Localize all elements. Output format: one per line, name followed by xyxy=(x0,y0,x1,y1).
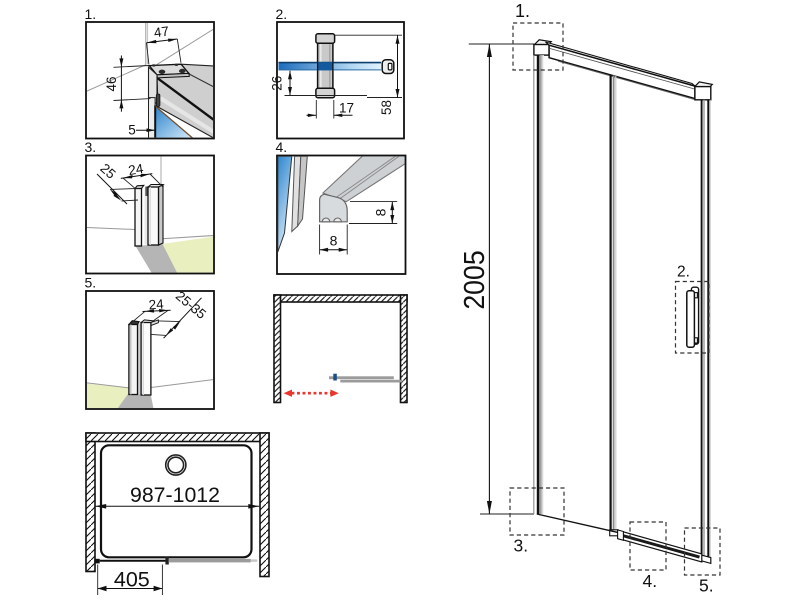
svg-text:5.: 5. xyxy=(85,275,97,291)
svg-text:17: 17 xyxy=(339,101,354,116)
svg-text:8: 8 xyxy=(330,233,338,249)
svg-text:2005: 2005 xyxy=(458,250,490,309)
svg-text:3.: 3. xyxy=(514,536,529,556)
svg-text:1.: 1. xyxy=(515,1,530,21)
svg-text:3.: 3. xyxy=(85,139,97,155)
svg-text:8: 8 xyxy=(373,208,389,216)
svg-text:1.: 1. xyxy=(85,6,97,22)
svg-text:26: 26 xyxy=(270,76,285,91)
svg-text:4.: 4. xyxy=(643,571,658,591)
svg-text:405: 405 xyxy=(114,567,150,591)
svg-text:24: 24 xyxy=(127,161,145,178)
svg-text:4.: 4. xyxy=(276,139,288,155)
svg-text:987-1012: 987-1012 xyxy=(130,483,220,507)
svg-text:24: 24 xyxy=(148,296,165,312)
svg-text:5.: 5. xyxy=(699,576,714,596)
svg-text:47: 47 xyxy=(153,24,170,41)
svg-text:46: 46 xyxy=(104,76,119,91)
svg-text:2.: 2. xyxy=(276,6,288,22)
svg-text:2.: 2. xyxy=(677,264,690,281)
svg-text:5: 5 xyxy=(128,123,136,138)
svg-text:58: 58 xyxy=(379,100,394,115)
